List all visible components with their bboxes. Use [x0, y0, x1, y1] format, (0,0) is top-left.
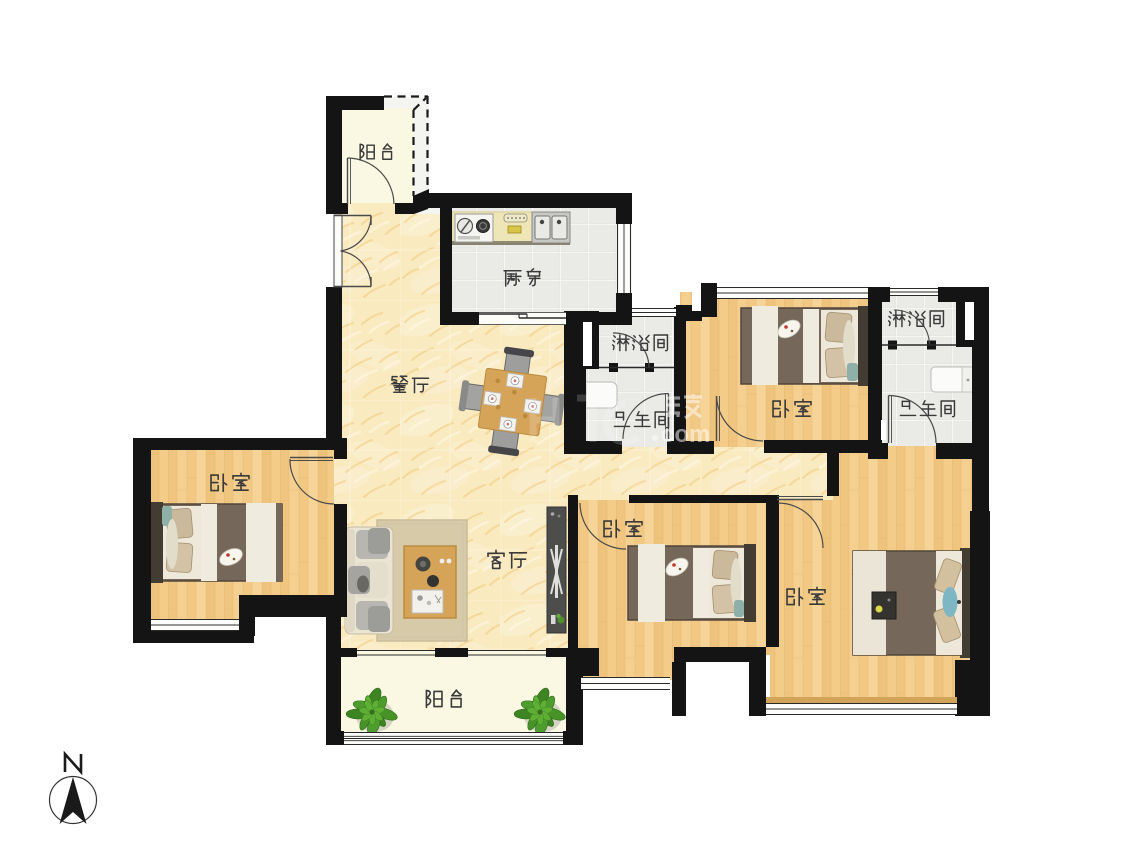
svg-text:com: com: [661, 421, 710, 448]
